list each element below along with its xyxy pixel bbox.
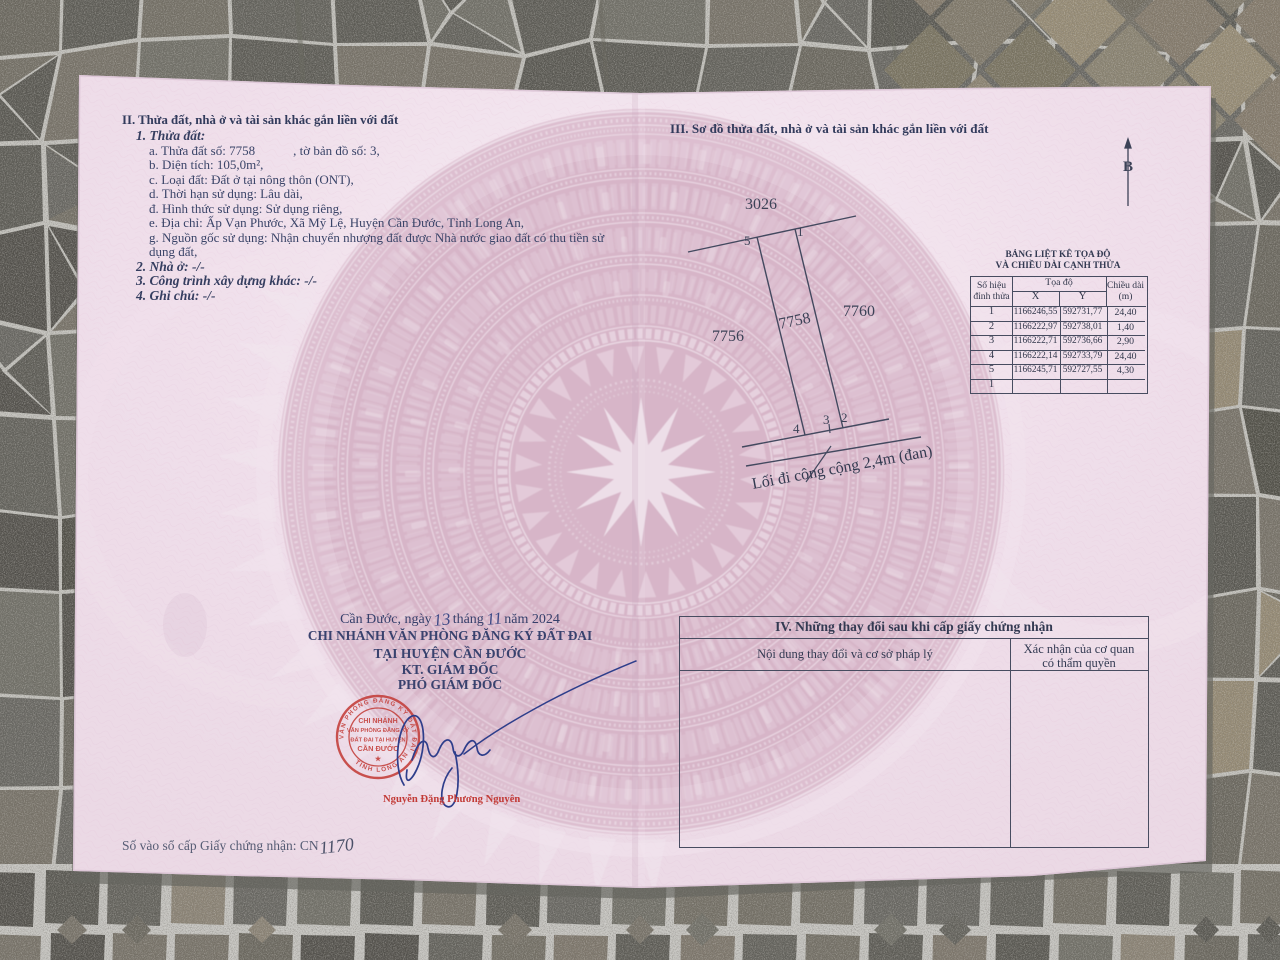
svg-text:CẦN ĐƯỚC: CẦN ĐƯỚC (357, 743, 399, 753)
svg-text:CHI NHÁNH: CHI NHÁNH (358, 716, 397, 725)
svg-text:★: ★ (375, 755, 382, 763)
svg-text:7758: 7758 (777, 310, 812, 333)
svg-text:VĂN PHÒNG ĐĂNG KÝ: VĂN PHÒNG ĐĂNG KÝ (347, 726, 409, 734)
svg-text:ĐẤT ĐAI TẠI HUYỆN: ĐẤT ĐAI TẠI HUYỆN (350, 736, 405, 744)
svg-text:1170: 1170 (318, 834, 355, 858)
